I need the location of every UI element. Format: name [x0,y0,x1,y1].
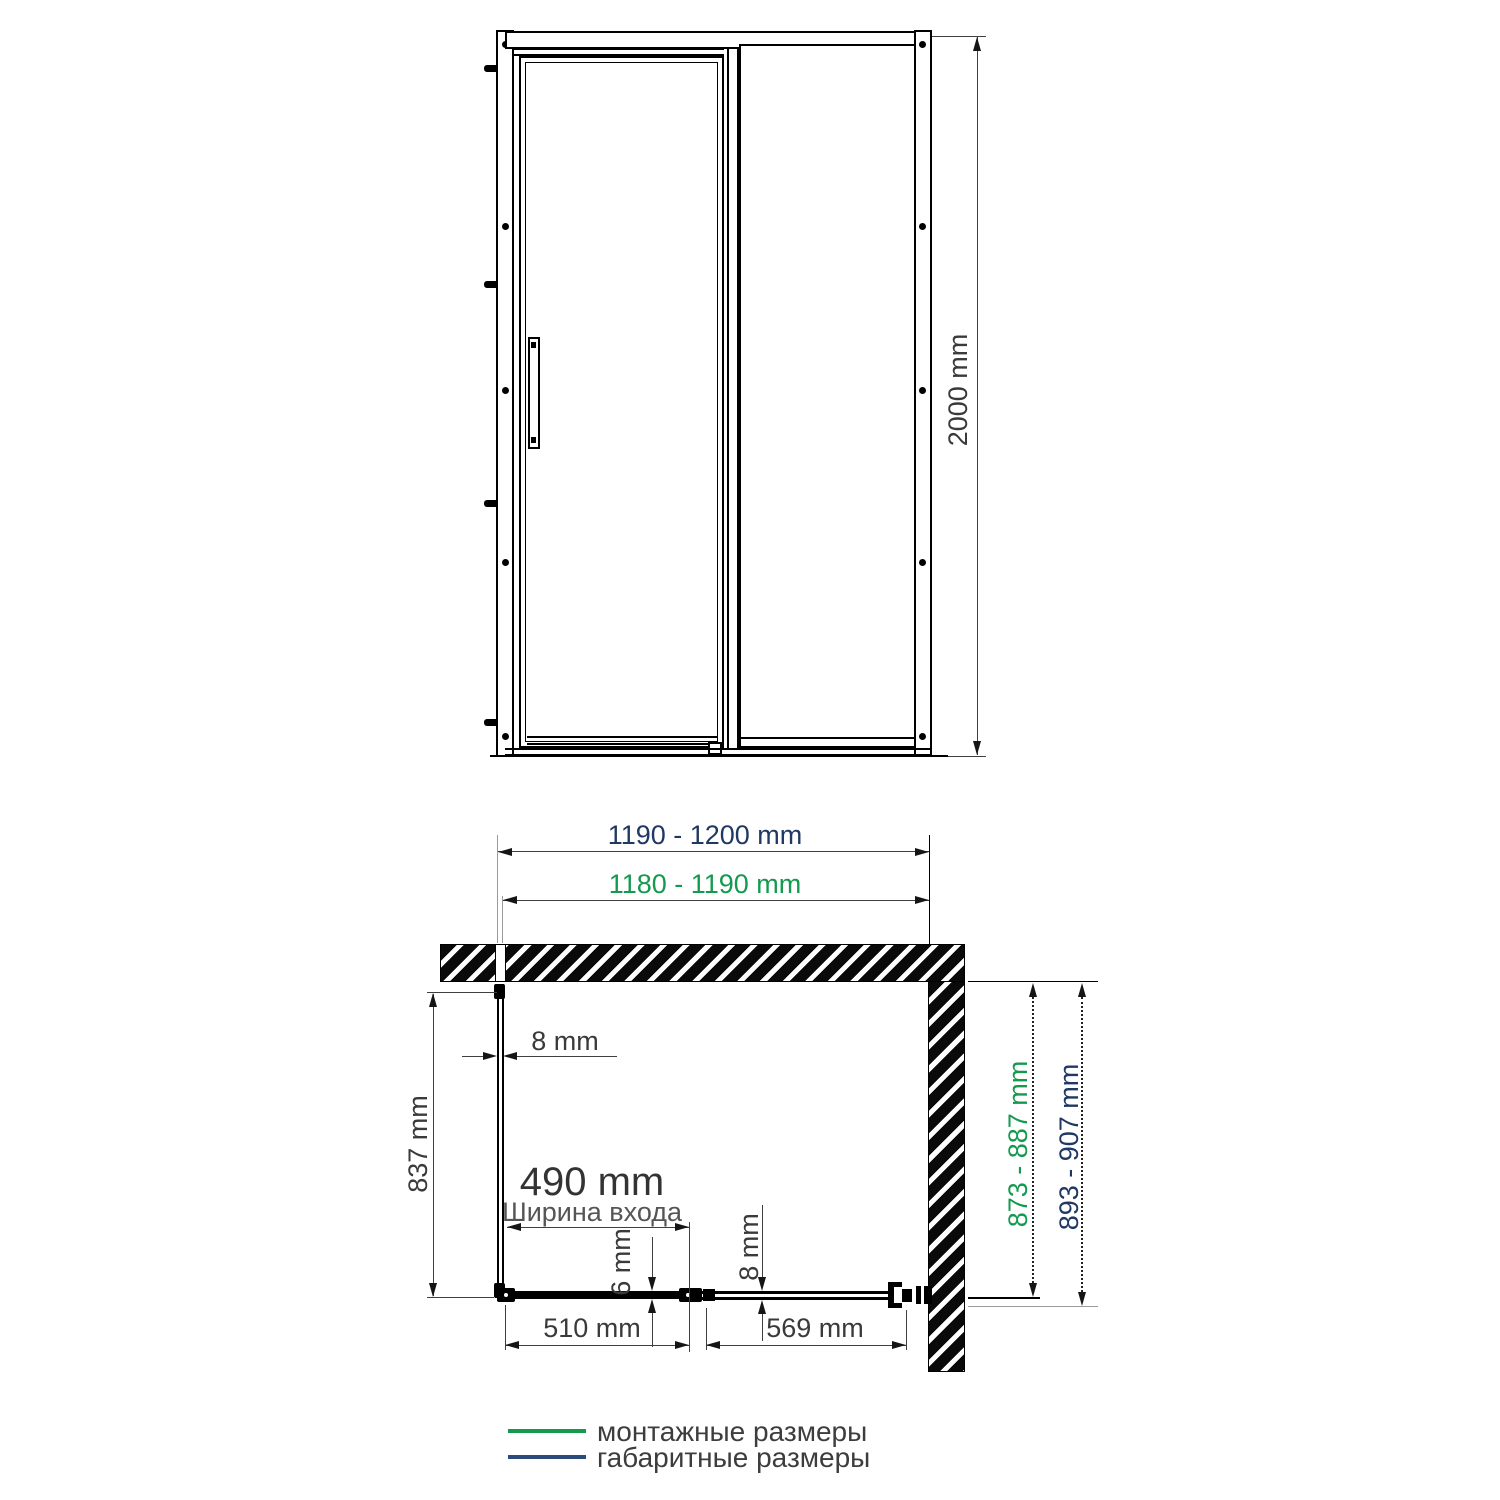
leader-line [462,1056,483,1057]
handle-mount [531,342,536,348]
mounting-depth-label: 873 - 887 mm [1005,1019,1031,1269]
dim-arrow [675,1223,689,1231]
dimension-line [505,1345,689,1346]
dim-arrow [507,1223,521,1231]
wall-right [928,981,965,1372]
wall-profile-connector [902,1289,912,1302]
connector-slit [921,1286,924,1304]
screw-dot [919,223,926,230]
dim-arrow [503,1052,517,1060]
extension-line [948,756,986,757]
legend-mounting-swatch [508,1429,586,1433]
screw-dot [919,733,926,740]
screw-dot [919,41,926,48]
glass-clamp [679,1288,702,1302]
dim-arrow [1029,1283,1037,1297]
screw-dot [502,733,509,740]
door-top-track [514,48,724,56]
fixed-glass-thickness-label: 6 mm [608,1217,634,1307]
wall-glass-slit [495,945,506,981]
dimension-line [503,900,929,901]
side-glass-thickness-label: 8 mm [520,1028,610,1054]
fixed-panel-bottom-line [741,737,914,739]
extension-line [968,981,1098,982]
wall-profile-connector [916,1286,932,1304]
extension-line [427,992,497,993]
door-width-label: 569 mm [715,1315,915,1342]
dim-arrow [1078,1292,1086,1306]
floor-baseline [490,755,948,757]
dim-arrow [973,741,981,755]
screw-dot [502,223,509,230]
door-end-cap [703,1289,715,1301]
overall-depth-label: 893 - 907 mm [1056,1022,1082,1272]
leader-line [762,1205,763,1277]
leader-line [517,1056,617,1057]
screw-dot [502,559,509,566]
mounting-width-label: 1180 - 1190 mm [575,871,835,897]
screw-dot [502,387,509,394]
technical-drawing: 2000 mm 1190 - 1200 mm [0,0,1500,1500]
dim-arrow [1078,983,1086,997]
extension-line [929,835,930,944]
dim-arrow [915,848,929,856]
wall-top [440,944,965,982]
door-handle [528,337,540,449]
dim-arrow [483,1052,497,1060]
door-handle-bracket-arm [894,1282,902,1287]
dim-arrow [429,1283,437,1297]
door-bottom-rail [527,736,717,745]
screw-dot [919,387,926,394]
dim-arrow [429,993,437,1007]
dim-arrow [648,1277,656,1291]
dimension-line [498,851,929,852]
side-glass-plan [497,984,504,1298]
legend-overall-label: габаритные размеры [597,1444,870,1472]
dimension-line [706,1345,906,1346]
dim-arrow [1029,983,1037,997]
handle-mount [531,437,536,443]
extension-line [427,1297,494,1298]
center-divider-line [727,48,729,748]
dim-arrow [892,1341,906,1349]
sliding-door-plan [701,1291,891,1300]
extension-line [906,1310,907,1350]
door-handle-bracket-arm [894,1303,902,1308]
dim-arrow [505,1341,519,1349]
fixed-glass-panel [739,44,916,748]
screw-dot [919,559,926,566]
dim-arrow [503,896,517,904]
dim-arrow [498,848,512,856]
dim-arrow [915,896,929,904]
height-dimension-label: 2000 mm [945,320,971,460]
dimension-line [977,37,978,755]
dim-arrow [675,1341,689,1349]
dim-arrow [648,1299,656,1313]
dim-arrow [758,1277,766,1291]
entrance-width-caption: Ширина входа [472,1199,712,1226]
dim-arrow [973,37,981,51]
legend-overall-swatch [508,1455,586,1459]
side-depth-label: 837 mm [405,1089,431,1199]
leader-line [652,1237,653,1277]
dimension-line [433,994,434,1296]
overall-width-label: 1190 - 1200 mm [575,822,835,848]
extension-line [968,1297,1040,1299]
dimension-line [507,1227,689,1228]
door-glass-inner-edge [525,62,718,742]
front-fixed-glass-plan [503,1291,690,1299]
clamp-screw [504,1293,508,1297]
extension-line [968,1306,1098,1307]
dim-arrow [758,1300,766,1314]
dim-arrow [706,1341,720,1349]
fixed-panel-width-label: 510 mm [492,1315,692,1342]
